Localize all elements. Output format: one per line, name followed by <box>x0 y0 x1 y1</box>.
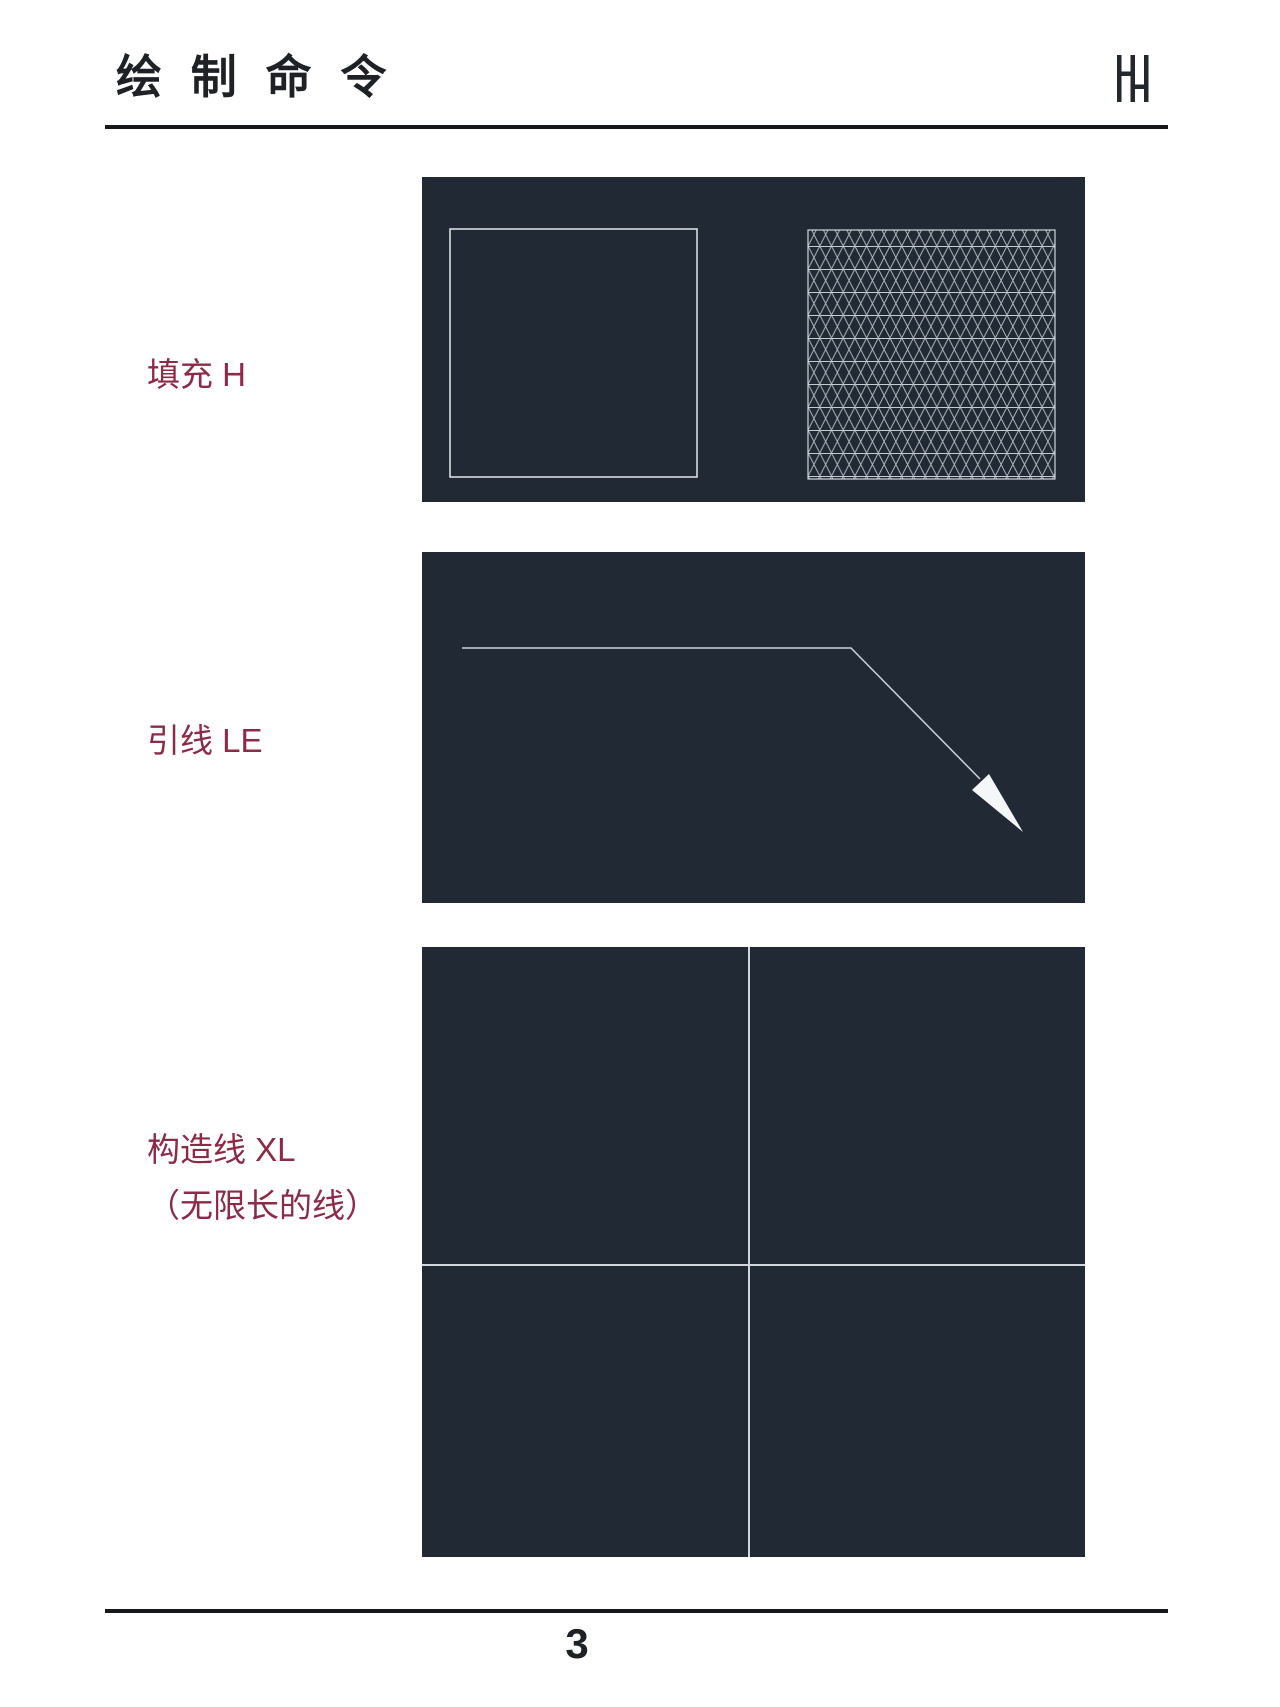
hatched-square <box>808 230 1055 479</box>
section-label-xline-line1: 构造线 XL <box>147 1122 378 1178</box>
page-number: 3 <box>547 1620 607 1668</box>
header-rule <box>105 125 1168 129</box>
cad-panel-xline <box>422 947 1085 1557</box>
section-label-hatch: 填充 H <box>147 347 246 403</box>
footer-rule <box>105 1609 1168 1613</box>
empty-square-outline <box>450 229 697 477</box>
page-title: 绘 制 命 令 <box>116 48 394 106</box>
section-label-xline-line2: （无限长的线） <box>147 1178 378 1234</box>
leader-arrowhead-icon <box>972 774 1023 832</box>
document-page: { "header": { "title": "绘 制 命 令", "logo"… <box>0 0 1280 1707</box>
cad-panel-hatch <box>422 177 1085 502</box>
section-label-xline: 构造线 XL （无限长的线） <box>147 1122 378 1234</box>
leader-line <box>462 648 980 779</box>
hh-monogram-icon <box>1117 55 1149 102</box>
section-label-leader: 引线 LE <box>147 713 263 769</box>
cad-panel-leader <box>422 552 1085 903</box>
